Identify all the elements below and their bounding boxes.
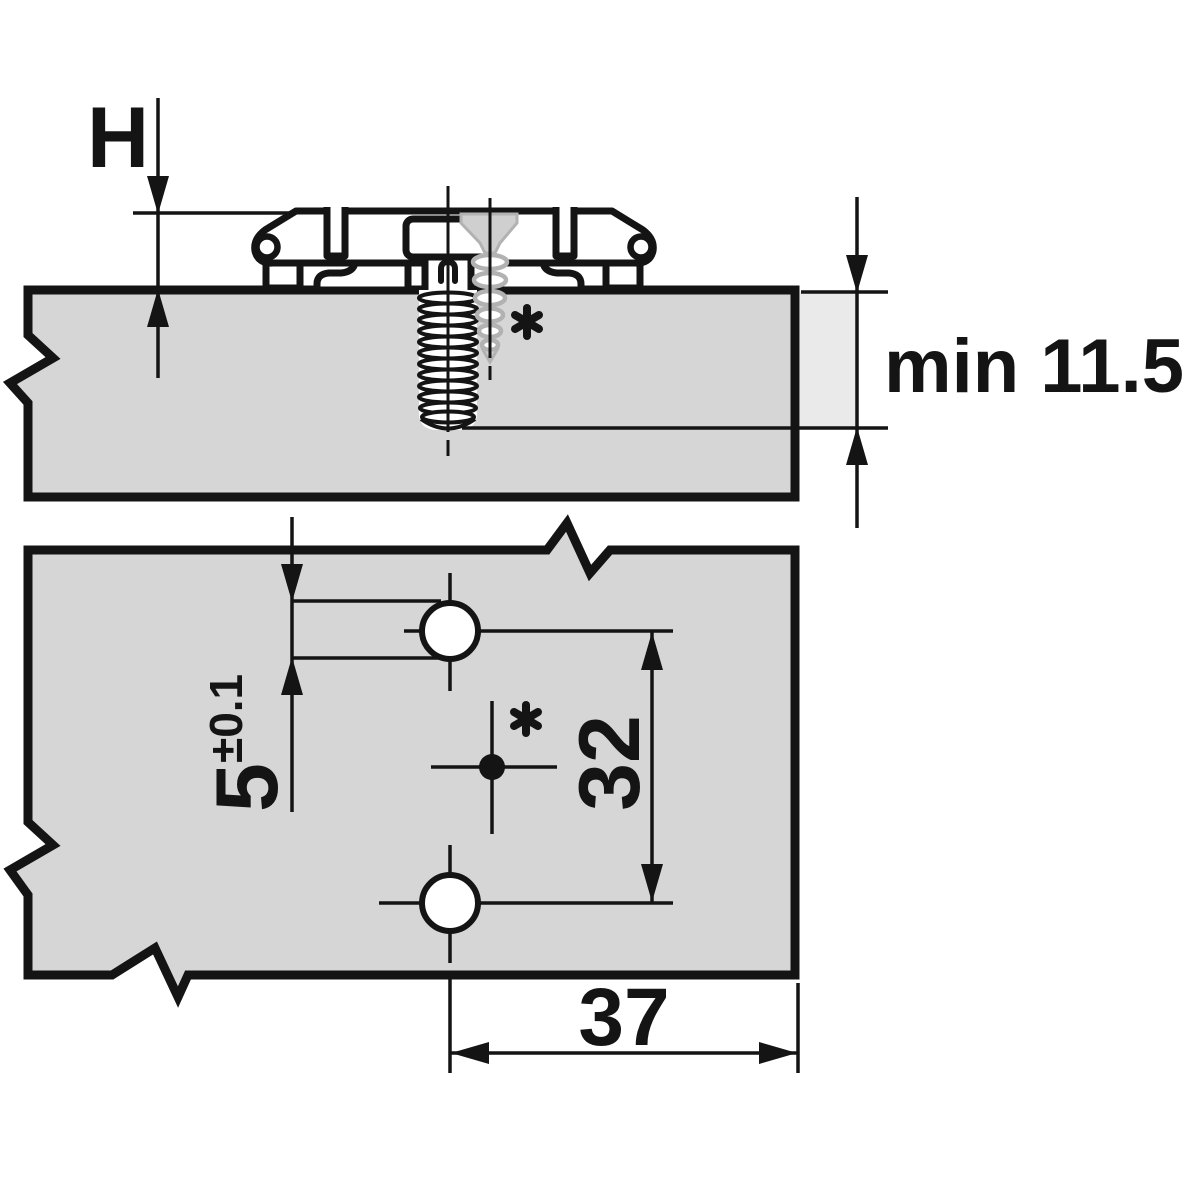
plate-left-ramp: [317, 263, 408, 290]
plate-left-slot: [327, 207, 345, 256]
dim-edge-distance-label: 37: [578, 972, 669, 1063]
mounting-plate: [255, 207, 654, 298]
dim-hole-spacing-label: 32: [562, 715, 658, 811]
arrow-up-icon: [846, 427, 868, 465]
board-cross-section: [10, 290, 795, 497]
dim-h-label: H: [87, 90, 149, 186]
technical-drawing-page: H min 11.5: [0, 0, 1200, 1200]
plate-right-slot: [556, 207, 574, 256]
dimension-edge-distance: 37: [450, 972, 798, 1073]
plate-left-cam-curl: [257, 237, 278, 258]
arrow-right-icon: [759, 1042, 797, 1064]
mounting-plate-diagram: H min 11.5: [0, 0, 1200, 1200]
board-top-view: [10, 523, 795, 997]
side-view-panel: H min 11.5: [10, 90, 1184, 528]
arrow-down-icon: [147, 176, 169, 214]
min-depth-zone: [800, 292, 857, 428]
arrow-left-icon: [451, 1042, 489, 1064]
plate-right-cam-curl: [631, 237, 652, 258]
arrow-down-icon: [846, 255, 868, 293]
top-view-panel: 5±0.1 32 37: [10, 517, 798, 1073]
dim-min-depth-label: min 11.5: [884, 324, 1184, 409]
